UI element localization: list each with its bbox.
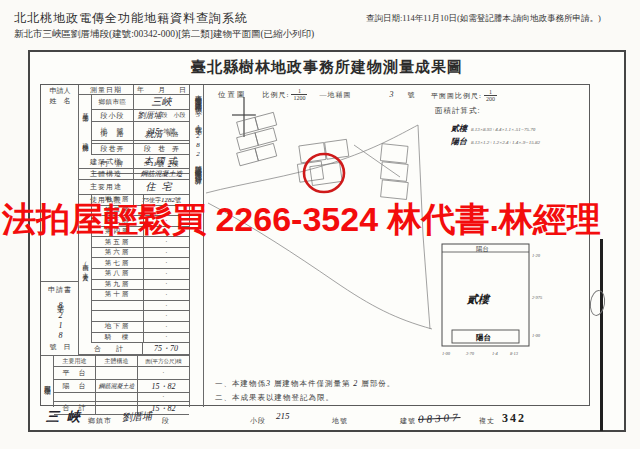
floor-label: 騎 樓	[92, 333, 144, 343]
floor-value: ·	[144, 333, 189, 343]
doorplate-group-label: 建物門牌	[79, 125, 92, 155]
strip-text-3: 號設計圖或竣工平面圖轉繪計算	[194, 159, 202, 173]
footer-town-hand: 三峽	[46, 408, 88, 426]
survey-date-label: 測量日期	[79, 85, 134, 94]
applicant-label-line1: 申請人	[41, 87, 79, 97]
floor-value: ·	[144, 301, 189, 311]
floor-row: 第八層 ·	[92, 269, 189, 280]
attributes-section: 建築式樣 本國式 主體構造 鋼筋混凝土造 主要用途 住宅 使用執照 75使字12…	[79, 155, 189, 195]
floor-value: ·	[144, 322, 189, 332]
annex-balcony-label: 陽 台	[54, 380, 96, 392]
auction-watermark: 法拍屋輕鬆買 2266-3524 林代書.林經理	[2, 201, 640, 238]
doorplate-section: 建物門牌 街 路 就清 街路 段巷弄 段 巷 弄 門 牌 3-11號 2樓	[79, 125, 189, 155]
footer-section-hand: 劉厝埔	[122, 409, 153, 425]
vertical-note-strip: 本建物平面圖及建物面積係照75使字第1282號設計圖或竣工平面圖轉繪計算	[189, 85, 204, 407]
survey-document: 臺北縣樹林地政事務所建物測量成果圖 申請人 姓 名 申請書 字第8218 號 日…	[28, 50, 626, 432]
notes-block: 一、本建物係3 層建物本件僅測量第 2 層部份。 二、本成果表以建物登記為限。	[215, 379, 395, 403]
annex-section: 附屬建物 主要用途 主體構造 面(平方公尺)積 平 台 · 陽 台 鋼筋混凝土造…	[41, 355, 189, 407]
lane-row: 段巷弄 段 巷 弄	[92, 144, 189, 155]
dim-bottom-2: 3·70	[466, 351, 475, 356]
note1-part-c: 層部份。	[361, 379, 395, 388]
site-sec-label: 段小段	[92, 110, 134, 121]
floor-value: ·	[144, 311, 189, 321]
floor-row: 第九層 ·	[92, 280, 189, 291]
floor-row: 地下層 ·	[92, 322, 189, 333]
system-title: 北北桃地政電傳全功能地籍資料查詢系統	[14, 10, 248, 27]
floor-label: 地下層	[92, 322, 144, 332]
footer-resurvey-label: 複丈	[479, 416, 495, 426]
floor-value: ·	[144, 248, 189, 258]
annex-balcony-structure: 鋼筋混凝土造	[96, 380, 138, 392]
street-hand: 就清	[145, 128, 163, 141]
map-plan-area: 位置圖 比例尺: 11200 —地籍圖 3 號 平面圖比例尺: 1200 面積計…	[204, 85, 591, 407]
fold-scribble-circle	[588, 289, 606, 317]
floor-label: 第六層	[92, 248, 144, 258]
floor-row: 第十層 ·	[92, 290, 189, 301]
floor-value: ·	[144, 269, 189, 279]
survey-date-row: 測量日期 年 月 日	[79, 85, 189, 95]
floor-label: 第十層	[92, 290, 144, 300]
site-town-row: 鄉鎮市區 三峽	[92, 95, 189, 110]
site-sec-suffix: 段 小段	[162, 111, 186, 120]
floor-row: 騎 樓 ·	[92, 333, 189, 344]
site-town-hand: 三峽	[152, 95, 172, 109]
site-sec-hand: 劉厝埔	[138, 110, 162, 121]
application-no-hand: 8218	[56, 301, 65, 341]
annex-blank-area: ·	[138, 393, 189, 401]
street-row: 街 路 就清 街路	[92, 125, 189, 144]
dim-bottom-3: 1·4	[492, 351, 498, 356]
strip-text-1: 本建物平面圖及建物面積係照	[194, 89, 202, 102]
structure-row: 主體構造 鋼筋混凝土造	[79, 169, 189, 180]
annex-platform-area: ·	[138, 367, 189, 379]
annex-row-balcony: 陽 台 鋼筋混凝土造 15・82	[54, 380, 189, 393]
site-section: 基地坐落 鄉鎮市區 三峽 段小段 劉厝埔段 小段 地 號 215 地號	[79, 95, 189, 125]
structure-hand: 鋼筋混凝土造	[141, 169, 183, 179]
plan-floor-label: 貳樓	[466, 293, 491, 305]
note-line-2: 二、本成果表以建物登記為限。	[215, 393, 395, 403]
plan-balcony-bottom-label: 陽台	[476, 333, 491, 342]
footer-lot-label: 地號	[332, 416, 348, 426]
site-town-label: 鄉鎮市區	[92, 95, 134, 109]
plan-balcony-top-label: 陽台	[476, 245, 489, 253]
applicant-label-line2: 姓 名	[41, 97, 79, 107]
annex-balcony-area: 15・82	[138, 380, 189, 392]
footer-building-no-hand: 08307	[418, 411, 461, 425]
floor-value: ·	[144, 280, 189, 290]
annex-balcony-structure-hand: 鋼筋混凝土造	[99, 382, 135, 391]
application-header: 申請書	[41, 285, 79, 295]
floor-row: ·	[92, 301, 189, 312]
land-registry-query-screenshot: { "page": { "header": { "system_title": …	[0, 0, 640, 449]
footer-town-label: 鄉鎮市	[88, 416, 112, 426]
site-group-label: 基地坐落	[79, 95, 92, 125]
floor-label: 第七層	[92, 258, 144, 268]
floor-value: ·	[144, 258, 189, 268]
style-label: 建築式樣	[79, 155, 134, 168]
lane-value: 段 巷 弄	[134, 144, 189, 154]
survey-date-value: 年 月 日	[134, 85, 189, 94]
footer-resurvey-number: 342	[502, 411, 526, 426]
floor-value: ·	[144, 237, 189, 247]
application-no-suffix: 號 日	[41, 342, 79, 352]
total-value: 75・70	[154, 343, 178, 354]
note1-hand-floor: 2	[353, 379, 358, 388]
application-divider	[41, 281, 79, 282]
parcel-cluster-c	[377, 144, 412, 200]
street-suffix: 街路	[167, 130, 179, 139]
dim-bottom-4: 8·13	[510, 351, 519, 356]
floor-row: 第五層 ·	[92, 237, 189, 248]
footer-strip: 三峽 鄉鎮市 劉厝埔 段 小段 215 地號 建號 08307 複丈 342	[30, 408, 628, 432]
plan-dimensions: 1·20 2·975 1·00 1·00 3·70 1·4 8·13	[442, 253, 543, 356]
document-info-line: 新北市三峽區劉厝埔段(建號:00342-000)[第二類]建物平面圖(已縮小列印…	[14, 28, 314, 41]
dim-right-2: 2·975	[532, 295, 543, 300]
floor-plan: 陽台 貳樓 陽台 1·20 2·975 1·00 1·00 3·70 1·4 8…	[442, 244, 543, 356]
floor-label: 第九層	[92, 280, 144, 290]
strip-hand-2: 1282	[194, 123, 202, 159]
floor-label	[92, 311, 144, 321]
note1-hand-floors: 3	[266, 379, 271, 388]
applicant-label: 申請人 姓 名	[41, 87, 79, 107]
fold-line	[600, 239, 603, 431]
query-date: 查詢日期:114年11月10日(如需登記謄本,請向地政事務所申請。)	[366, 13, 601, 25]
annex-row-blank: ·	[54, 393, 189, 402]
floor-label	[92, 301, 144, 311]
footer-building-no-label: 建號	[400, 416, 416, 426]
total-label: 合 計	[79, 343, 143, 354]
footer-subsection-hand: 215	[276, 411, 290, 421]
usage-row: 主要用途 住宅	[79, 180, 189, 195]
floor-row: ·	[92, 311, 189, 322]
annex-header-area: 面(平方公尺)積	[138, 356, 189, 366]
note-line-1: 一、本建物係3 層建物本件僅測量第 2 層部份。	[215, 379, 395, 389]
floor-value: ·	[144, 290, 189, 300]
annex-blank-label	[54, 393, 96, 401]
usage-hand: 住宅	[146, 180, 178, 194]
parcel-cluster-a	[229, 112, 285, 165]
north-arrow-icon	[232, 97, 256, 137]
total-row: 合 計 75・70	[79, 343, 189, 355]
application-number: 字第8218	[55, 299, 65, 341]
floor-row: 第七層 ·	[92, 258, 189, 269]
annex-header-structure: 主體構造	[96, 356, 138, 366]
floor-label: 第八層	[92, 269, 144, 279]
usage-label: 主要用途	[79, 180, 134, 194]
annex-blank-structure	[96, 393, 138, 401]
style-hand: 本國式	[144, 155, 180, 168]
footer-subsection-label: 小段	[250, 416, 266, 426]
map-and-plan-drawing: 陽台 貳樓 陽台 1·20 2·975 1·00 1·00 3·70 1·4 8…	[204, 85, 591, 407]
floor-label: 第五層	[92, 237, 144, 247]
street-label: 街 路	[92, 125, 134, 143]
footer-section-label: 段	[162, 416, 170, 426]
annex-group-label: 附屬建物	[41, 356, 54, 407]
document-title: 臺北縣樹林地政事務所建物測量成果圖	[30, 58, 624, 77]
form-box: 申請人 姓 名 申請書 字第8218 號 日 測量日期 年 月 日 基地坐落 鄉…	[40, 84, 590, 406]
annex-row-platform: 平 台 ·	[54, 367, 189, 380]
note1-part-a: 一、本建物係	[215, 379, 266, 388]
annex-header-usage: 主要用途	[54, 356, 96, 366]
lane-label: 段巷弄	[92, 144, 134, 154]
dim-right-3: 1·00	[532, 333, 541, 338]
annex-platform-structure	[96, 367, 138, 379]
site-section-row: 段小段 劉厝埔段 小段	[92, 110, 189, 122]
floor-row: 第六層 ·	[92, 248, 189, 259]
dim-right-1: 1·20	[532, 253, 541, 258]
structure-label: 主體構造	[79, 169, 134, 179]
style-row: 建築式樣 本國式	[79, 155, 189, 169]
note1-part-b: 層建物本件僅測量第	[274, 379, 351, 388]
strip-hand-1: 75	[194, 102, 202, 120]
annex-platform-label: 平 台	[54, 367, 96, 379]
annex-balcony-area-hand: 15・82	[152, 381, 176, 392]
dim-bottom-1: 1·00	[442, 351, 451, 356]
annex-header-row: 主要用途 主體構造 面(平方公尺)積	[54, 356, 189, 367]
